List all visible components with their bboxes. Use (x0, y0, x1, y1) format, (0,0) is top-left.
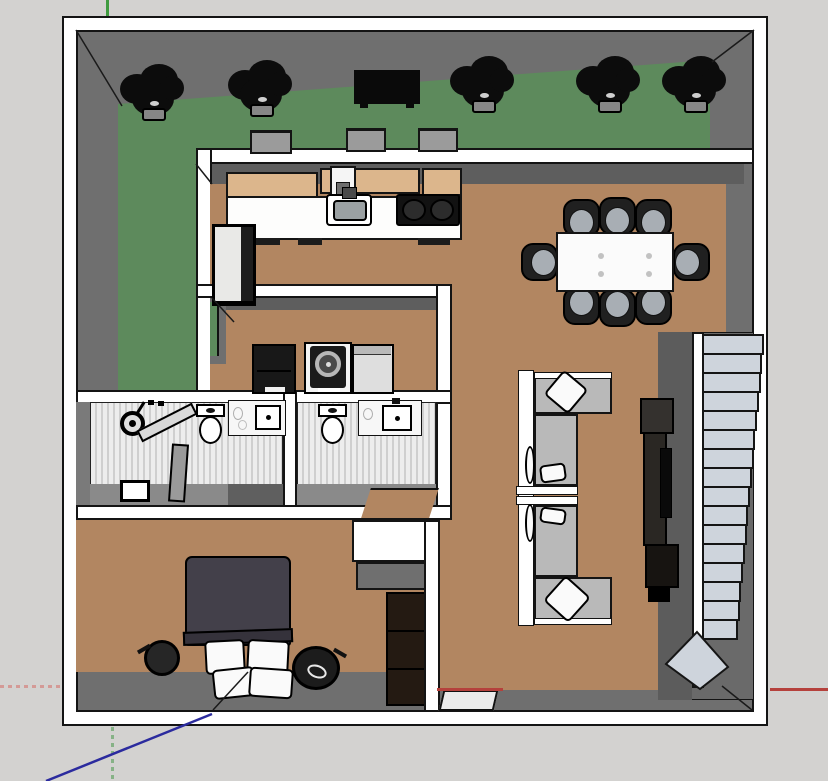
plant-highlight (258, 97, 267, 102)
dining-chair[interactable] (521, 243, 558, 281)
stair-step (702, 486, 750, 507)
bathroom1-corner-wedge (228, 484, 283, 506)
cabinet-kick (265, 387, 285, 392)
dining-chair[interactable] (673, 243, 710, 281)
stair-step (702, 543, 745, 564)
chair-cushion (675, 249, 700, 276)
potted-plant[interactable] (662, 56, 728, 116)
potted-plant[interactable] (450, 56, 516, 116)
chair-cushion (605, 291, 630, 318)
washing-machine[interactable] (304, 342, 352, 394)
plant-foliage (268, 72, 292, 96)
burner (402, 199, 426, 221)
window-box (250, 130, 292, 154)
cabinet-shadow (298, 238, 322, 245)
stair-step (702, 619, 738, 640)
placemat-dot (646, 253, 652, 259)
burner (430, 199, 454, 221)
bench-leg (360, 103, 368, 108)
placemat-dot (598, 253, 604, 259)
sofa-arm-bottom-edge (534, 618, 612, 625)
laundry-cabinet[interactable] (252, 344, 296, 394)
dryer-lid (354, 346, 391, 355)
console-top-box (640, 398, 674, 434)
marble-swirl (233, 407, 243, 420)
marble-swirl (363, 408, 373, 420)
chair-cushion (569, 289, 594, 316)
laundry-window-strip (210, 302, 219, 356)
dining-chair[interactable] (635, 287, 672, 325)
bedroom-living-wall (424, 520, 440, 712)
cooktop[interactable] (396, 194, 460, 226)
shower-arm (136, 401, 146, 414)
marble-swirl (238, 420, 247, 430)
plant-highlight (480, 93, 489, 98)
bathroom1-left-face (76, 402, 90, 506)
fridge-door (215, 227, 241, 301)
wardrobe-cabinet[interactable] (386, 592, 426, 706)
axis-green-negative (111, 727, 114, 781)
stair-step (702, 524, 747, 545)
coffee-table-2 (516, 496, 578, 505)
viewport[interactable] (0, 0, 828, 781)
drum-center (326, 362, 331, 367)
bench-leg (406, 103, 414, 108)
plant-highlight (606, 93, 615, 98)
potted-plant[interactable] (120, 64, 186, 124)
sofa-cushion (539, 462, 567, 483)
upper-cabinet-segment[interactable] (226, 172, 318, 198)
placemat-dot (646, 271, 652, 277)
chair-cushion (641, 289, 666, 316)
dining-chair[interactable] (599, 197, 636, 235)
stair-step (702, 600, 740, 621)
refrigerator[interactable] (212, 224, 256, 306)
nightstand-left[interactable] (144, 640, 180, 676)
stair-step (702, 410, 757, 431)
axis-red-negative (0, 685, 62, 688)
sink-basin (333, 200, 367, 221)
plant-pot (142, 108, 166, 121)
chair-cushion (605, 207, 630, 234)
floor-box[interactable] (120, 480, 150, 502)
coffee-table-1 (516, 486, 578, 495)
washer-controls (318, 388, 340, 392)
dining-chair[interactable] (563, 287, 600, 325)
dining-table[interactable] (556, 232, 674, 292)
stair-step (702, 505, 748, 526)
toilet-flush (206, 408, 215, 413)
sofa-cushion (539, 506, 567, 525)
console-base (645, 544, 679, 588)
stair-step (702, 448, 754, 469)
window-box (346, 128, 386, 152)
plant-foliage (702, 68, 726, 92)
toilet-2[interactable] (316, 402, 352, 446)
stair-step (702, 391, 759, 412)
plant-pot (250, 104, 274, 117)
shower-control (158, 401, 164, 406)
nightstand-right[interactable] (292, 646, 340, 690)
sink-drain (395, 416, 400, 421)
vanity-1[interactable] (228, 400, 286, 438)
plant-pot (472, 100, 496, 113)
stair-step (702, 334, 764, 355)
wardrobe-shelf-line (388, 668, 424, 670)
axis-red-through-door (437, 688, 503, 691)
plant-highlight (692, 93, 701, 98)
plant-pot (684, 100, 708, 113)
cabinet-shadow (418, 238, 450, 245)
stair-step (702, 372, 761, 393)
dining-chair[interactable] (599, 289, 636, 327)
wardrobe-shelf-line (388, 630, 424, 632)
plant-pot (598, 100, 622, 113)
cabinet-seam (257, 370, 291, 372)
plant-foliage (490, 68, 514, 92)
toilet-bowl (199, 416, 222, 444)
stair-step (702, 353, 762, 374)
sink-faucet (342, 187, 357, 199)
bathroom2-doorway (361, 488, 439, 518)
plant-foliage (616, 68, 640, 92)
bed[interactable] (183, 554, 295, 700)
fridge-side (241, 227, 253, 301)
sectional-sofa[interactable] (516, 368, 616, 628)
toilet-flush (328, 408, 337, 413)
entry-threshold[interactable] (439, 690, 499, 711)
sofa-bolster (525, 504, 535, 542)
kitchen-sink[interactable] (326, 194, 372, 226)
window-box (418, 128, 458, 152)
console-foot (648, 586, 670, 602)
plant-foliage (160, 76, 184, 100)
plant-highlight (150, 101, 159, 106)
stair-step (702, 562, 743, 583)
stair-step (702, 581, 741, 602)
chair-cushion (531, 249, 556, 276)
tv-screen (660, 448, 672, 518)
nightstand-highlight (305, 662, 328, 681)
potted-plant[interactable] (228, 60, 294, 120)
tv-console[interactable] (638, 396, 688, 604)
toilet-bowl (321, 416, 344, 444)
axis-red-positive (770, 688, 828, 691)
stair-step (702, 429, 755, 450)
bed-pillow (248, 667, 294, 700)
sink-drain (266, 415, 271, 420)
axis-green-positive (106, 0, 109, 16)
sofa-bolster (525, 446, 535, 484)
placemat-dot (598, 271, 604, 277)
dryer[interactable] (352, 344, 394, 394)
vanity-2[interactable] (358, 400, 422, 438)
potted-plant[interactable] (576, 56, 642, 116)
garden-bench[interactable] (354, 70, 420, 104)
stair-step (702, 467, 752, 488)
shower-head-center (129, 420, 136, 427)
shower-control (148, 400, 154, 405)
toilet-1[interactable] (194, 402, 230, 446)
sink-faucet (392, 398, 400, 404)
upper-cabinet-segment[interactable] (422, 168, 462, 196)
